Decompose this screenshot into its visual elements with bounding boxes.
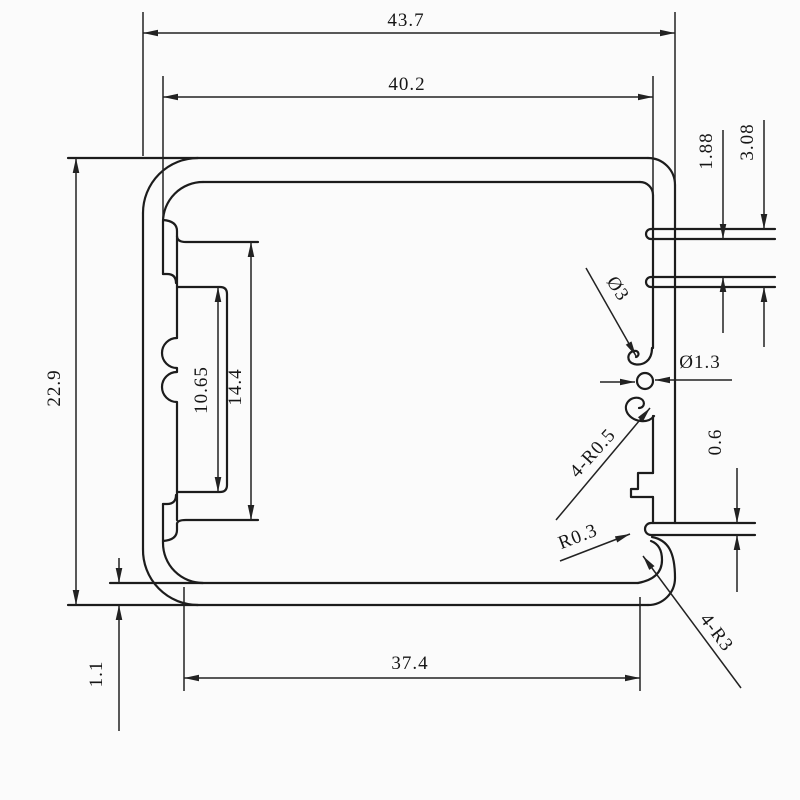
outer-bottom-left-corner bbox=[143, 549, 198, 605]
boss-upper-jaw bbox=[628, 348, 652, 364]
drawing-canvas: 43.7 40.2 22.9 37.4 1.1 10.65 14.4 1.88 … bbox=[0, 0, 800, 800]
dim-slot-radius: R0.3 bbox=[555, 520, 600, 554]
channel-bottom-face bbox=[177, 520, 258, 524]
extrusion-profile bbox=[68, 158, 775, 605]
fin-bottom bbox=[645, 523, 755, 535]
ext-inner-width bbox=[163, 76, 653, 228]
dim-corner-radius: 4-R3 bbox=[695, 610, 737, 656]
channel-bottom-shoulder bbox=[163, 495, 176, 504]
dim-bottom-wall-thickness: 1.1 bbox=[86, 661, 107, 688]
dim-hole-diameter: Ø1.3 bbox=[679, 352, 720, 373]
dimension-lines bbox=[76, 12, 764, 731]
channel-top-face bbox=[177, 236, 258, 242]
inner-top-right-corner bbox=[640, 182, 653, 195]
leader-corner-radius bbox=[643, 556, 741, 688]
dim-boss-diameter: Ø3 bbox=[602, 273, 634, 306]
dim-overall-width: 43.7 bbox=[387, 10, 424, 31]
fin-top-1 bbox=[646, 229, 775, 239]
inner-top-left-corner bbox=[163, 182, 203, 222]
dim-fin-gap: 1.88 bbox=[696, 132, 717, 169]
outer-top-left-corner bbox=[143, 158, 198, 213]
channel-top-shoulder bbox=[163, 274, 176, 283]
wall-notch bbox=[631, 473, 653, 497]
boss-screw-hole bbox=[637, 373, 653, 389]
dim-channel-inner-height: 10.65 bbox=[191, 366, 212, 414]
inner-bottom-left-corner bbox=[163, 543, 203, 583]
technical-drawing: 43.7 40.2 22.9 37.4 1.1 10.65 14.4 1.88 … bbox=[0, 0, 800, 800]
ext-overall-width bbox=[143, 12, 675, 228]
channel-serration bbox=[162, 338, 177, 520]
dim-inner-width: 40.2 bbox=[388, 74, 425, 95]
dim-channel-outer-height: 14.4 bbox=[225, 368, 246, 405]
dim-fin-thickness: 0.6 bbox=[705, 429, 726, 456]
channel-bottom-hook bbox=[163, 524, 177, 541]
dim-overall-height: 22.9 bbox=[44, 369, 65, 406]
outer-top-right-corner bbox=[648, 158, 675, 185]
ext-bottom-width bbox=[184, 587, 640, 691]
dim-fin-span: 3.08 bbox=[737, 123, 758, 160]
dim-bottom-width: 37.4 bbox=[391, 653, 428, 674]
fin-top-2 bbox=[646, 277, 775, 287]
